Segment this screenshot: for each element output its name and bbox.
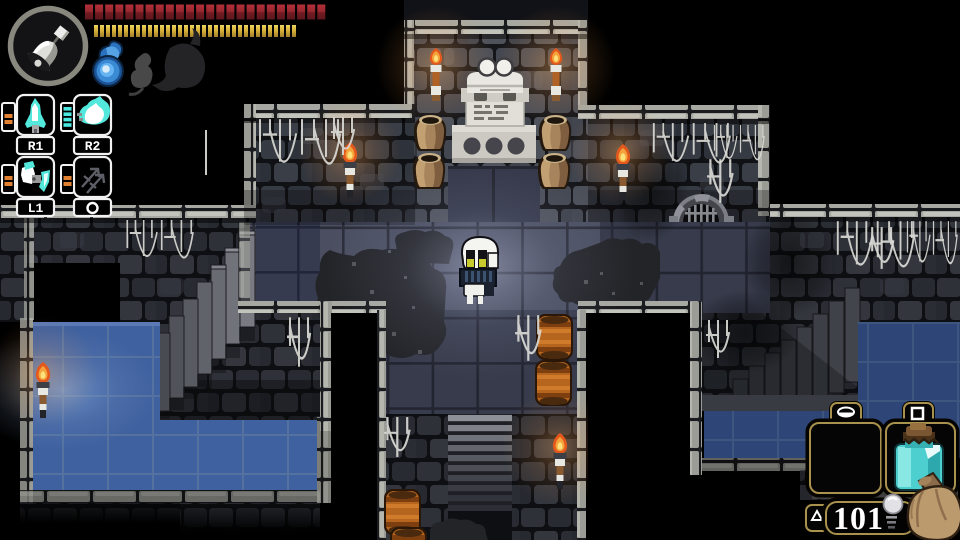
- svg-text:1: 1: [867, 500, 883, 536]
- svg-text:R1: R1: [28, 139, 44, 154]
- svg-text:0: 0: [850, 500, 866, 536]
- svg-text:L1: L1: [28, 201, 44, 216]
- svg-text:1: 1: [833, 500, 849, 536]
- svg-text:R2: R2: [85, 139, 101, 154]
